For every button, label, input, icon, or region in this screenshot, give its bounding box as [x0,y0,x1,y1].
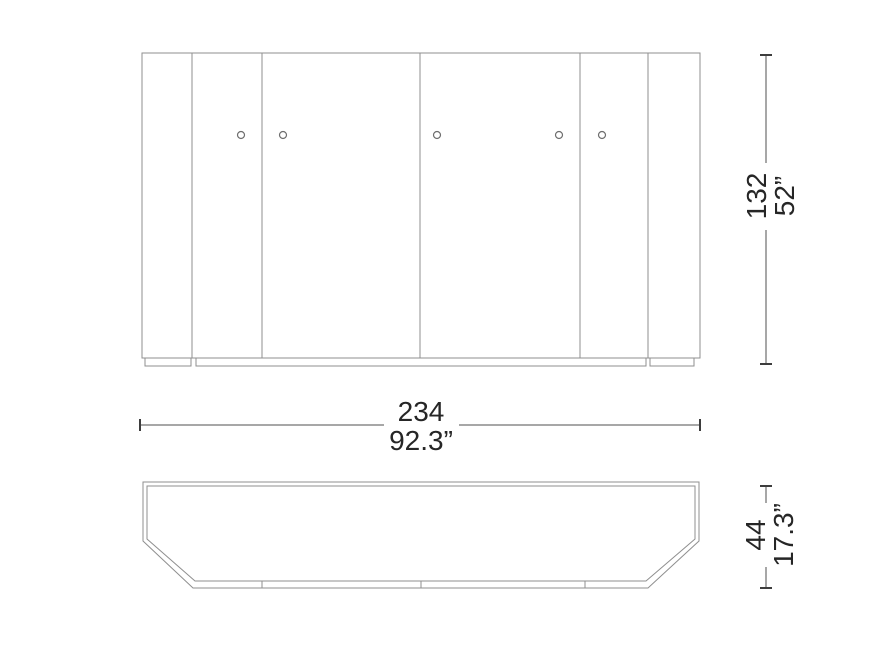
door-knob [280,132,287,139]
door-knob [238,132,245,139]
door-knob [599,132,606,139]
door-knob [434,132,441,139]
front-body-outline [142,53,700,358]
dimension-drawing: 234 92.3” 132 52” 44 17.3” [0,0,875,656]
height-dimension-in: 52” [771,176,799,216]
depth-dimension-cm: 44 [742,519,770,550]
right-foot [650,358,694,366]
plan-outer-outline [143,482,699,588]
center-plinth [196,358,646,366]
left-foot [145,358,191,366]
plan-inner-outline [147,486,695,581]
front-view [142,53,700,366]
width-dimension-cm: 234 [398,398,445,426]
drawing-svg [0,0,875,656]
width-dimension-in: 92.3” [389,427,453,455]
height-dimension-cm: 132 [743,173,771,220]
depth-dimension-in: 17.3” [770,503,798,567]
door-knob [556,132,563,139]
top-view [143,482,699,588]
